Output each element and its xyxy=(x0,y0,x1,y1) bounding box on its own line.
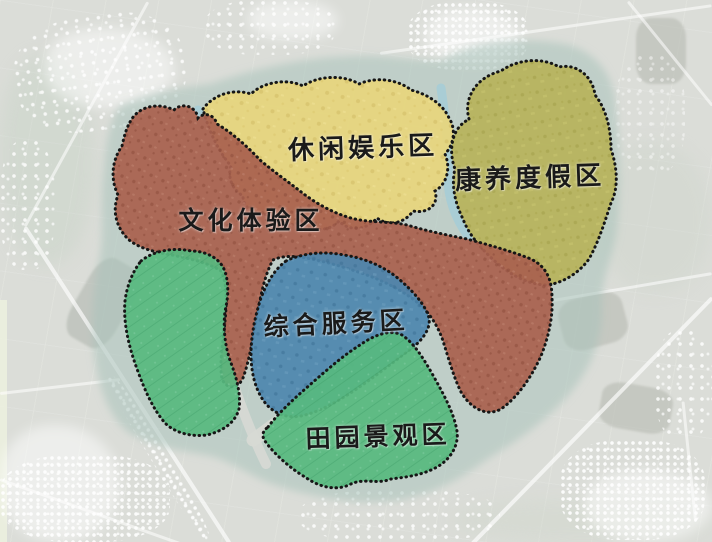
pastoral-zone-label: 田园景观区 xyxy=(305,414,451,455)
leisure-zone-label: 休闲娱乐区 xyxy=(287,125,438,167)
culture-zone-label: 文化体验区 xyxy=(178,201,323,237)
zones-layer xyxy=(0,0,712,542)
wellness-zone-label: 康养度假区 xyxy=(454,155,605,197)
zoning-map: 休闲娱乐区 康养度假区 文化体验区 综合服务区 田园景观区 xyxy=(0,0,712,542)
service-zone-label: 综合服务区 xyxy=(263,300,410,344)
